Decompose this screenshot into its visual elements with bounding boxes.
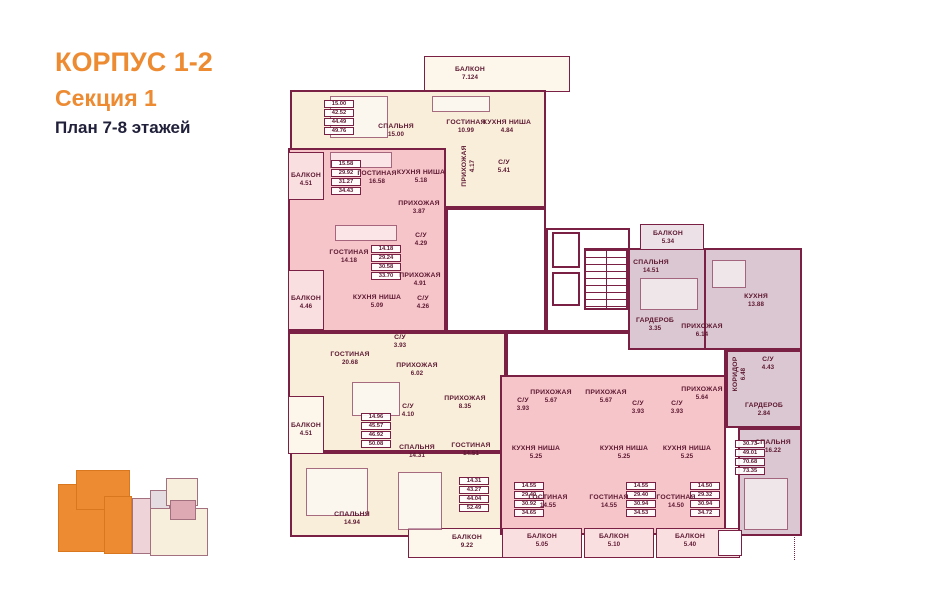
minimap-block <box>170 500 196 520</box>
minimap <box>0 0 941 600</box>
minimap-block <box>104 496 132 554</box>
